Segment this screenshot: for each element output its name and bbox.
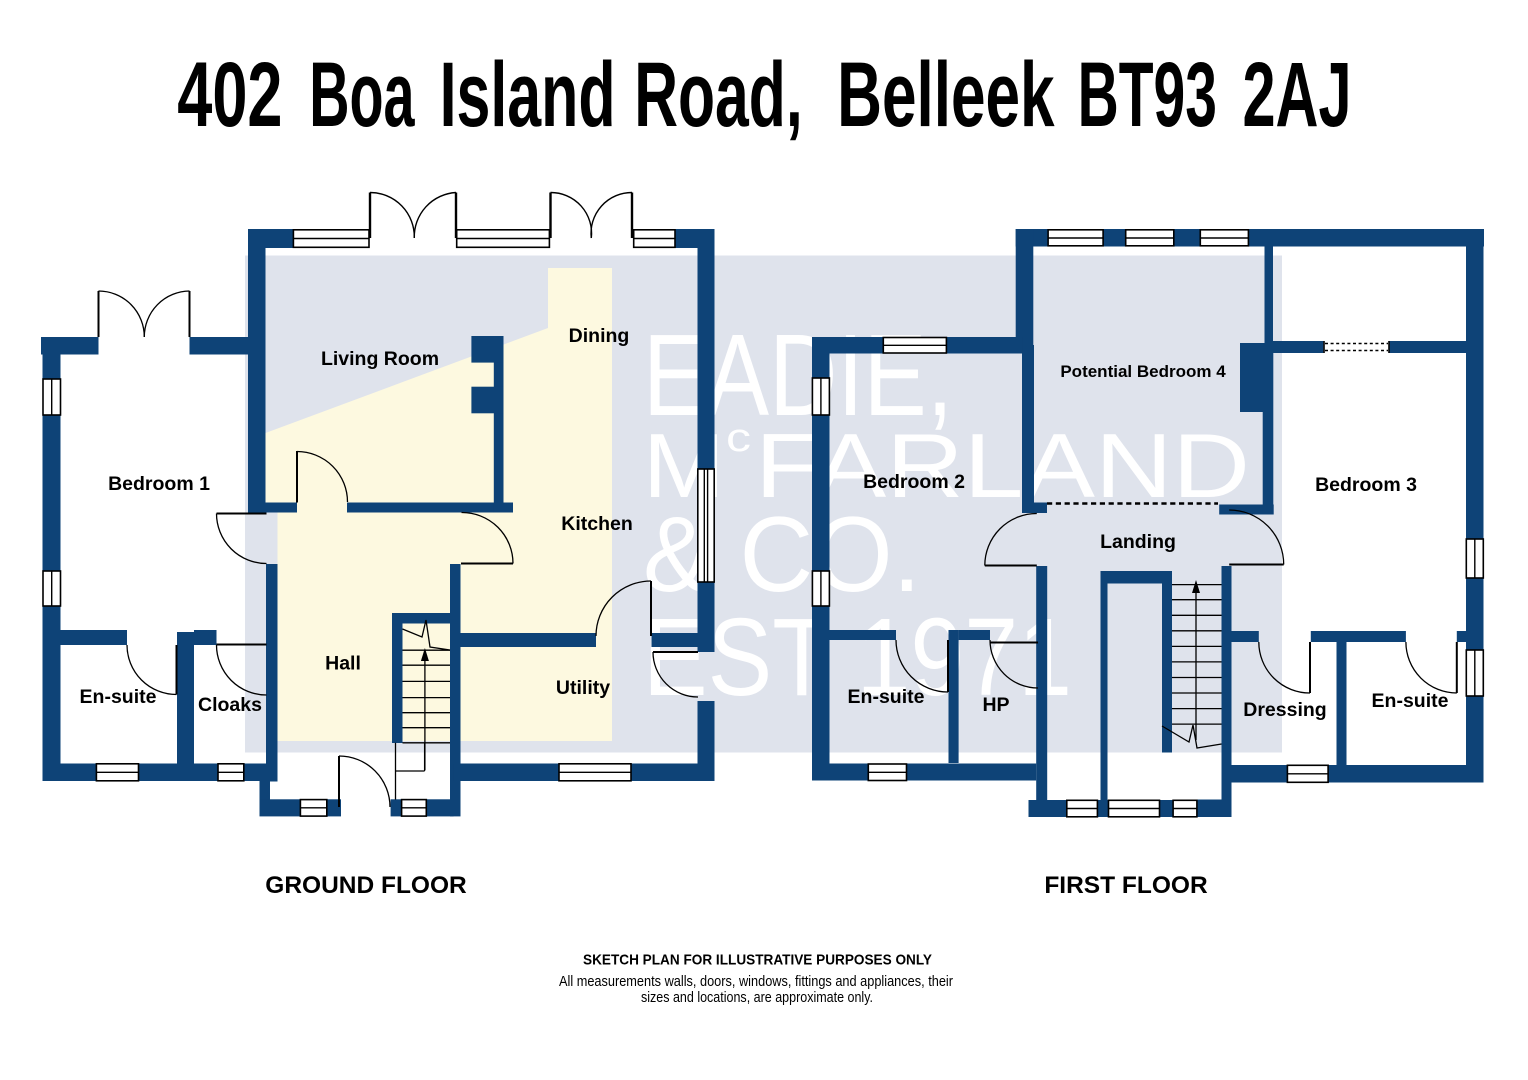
svg-text:HP: HP bbox=[982, 694, 1009, 716]
svg-text:Dining: Dining bbox=[569, 325, 630, 347]
svg-text:Hall: Hall bbox=[325, 653, 361, 675]
svg-text:Dressing: Dressing bbox=[1243, 699, 1326, 721]
svg-text:GROUND FLOOR: GROUND FLOOR bbox=[265, 872, 467, 899]
svg-text:Bedroom 1: Bedroom 1 bbox=[108, 473, 210, 495]
svg-text:Potential Bedroom 4: Potential Bedroom 4 bbox=[1060, 362, 1226, 381]
svg-text:Kitchen: Kitchen bbox=[561, 513, 633, 535]
svg-text:Utility: Utility bbox=[556, 677, 610, 699]
svg-text:En-suite: En-suite bbox=[1372, 690, 1449, 712]
svg-text:Bedroom 3: Bedroom 3 bbox=[1315, 474, 1417, 496]
svg-text:2AJ: 2AJ bbox=[1243, 44, 1352, 146]
svg-text:Island: Island bbox=[440, 44, 616, 146]
svg-text:sizes and locations, are appro: sizes and locations, are approximate onl… bbox=[641, 989, 873, 1006]
svg-text:Landing: Landing bbox=[1100, 531, 1176, 553]
svg-text:BT93: BT93 bbox=[1078, 44, 1217, 146]
svg-text:En-suite: En-suite bbox=[848, 686, 925, 708]
svg-text:Cloaks: Cloaks bbox=[198, 694, 262, 716]
svg-text:SKETCH PLAN FOR ILLUSTRATIVE P: SKETCH PLAN FOR ILLUSTRATIVE PURPOSES ON… bbox=[583, 952, 932, 969]
svg-text:En-suite: En-suite bbox=[80, 686, 157, 708]
svg-text:c: c bbox=[726, 416, 751, 460]
svg-text:FIRST FLOOR: FIRST FLOOR bbox=[1044, 872, 1208, 899]
svg-text:All measurements walls, doors,: All measurements walls, doors, windows, … bbox=[559, 973, 953, 990]
svg-text:402: 402 bbox=[177, 44, 282, 146]
svg-text:Boa: Boa bbox=[309, 44, 415, 146]
svg-text:Bedroom 2: Bedroom 2 bbox=[863, 471, 965, 493]
svg-text:Belleek: Belleek bbox=[837, 44, 1055, 146]
svg-text:Road,: Road, bbox=[634, 44, 803, 146]
svg-text:Living Room: Living Room bbox=[321, 348, 439, 370]
